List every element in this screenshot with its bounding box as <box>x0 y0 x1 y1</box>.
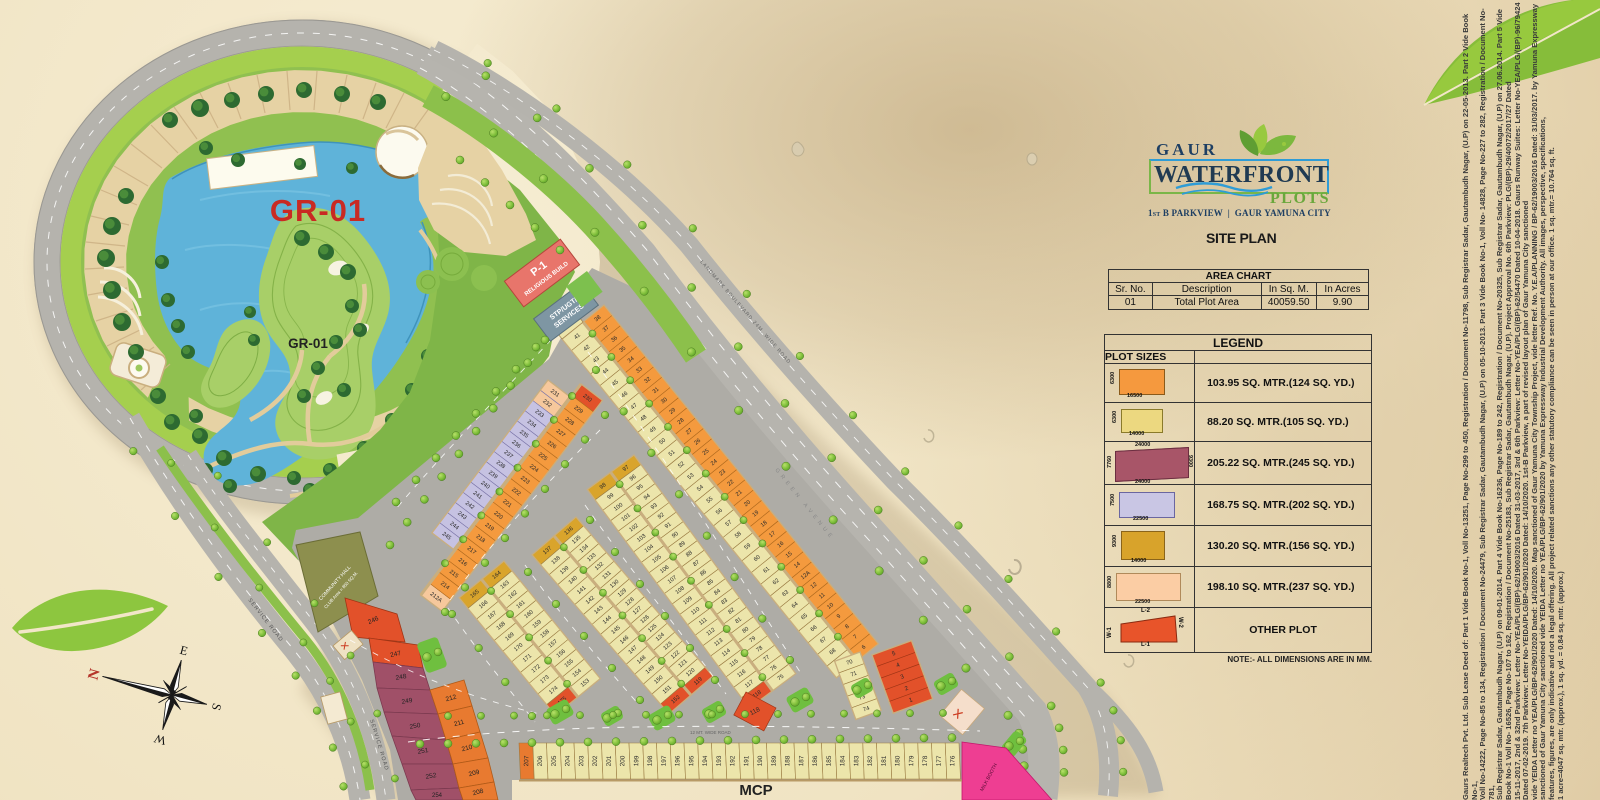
svg-text:193: 193 <box>716 755 723 766</box>
svg-text:199: 199 <box>633 755 640 766</box>
svg-text:183: 183 <box>853 755 860 766</box>
svg-text:204: 204 <box>564 755 571 766</box>
svg-text:254: 254 <box>432 793 443 799</box>
svg-text:191: 191 <box>743 755 750 766</box>
svg-text:182: 182 <box>867 755 874 766</box>
svg-text:194: 194 <box>702 755 709 766</box>
svg-text:198: 198 <box>647 755 654 766</box>
svg-text:189: 189 <box>771 755 778 766</box>
svg-text:207: 207 <box>523 755 530 766</box>
svg-text:177: 177 <box>936 755 943 766</box>
svg-text:185: 185 <box>826 755 833 766</box>
svg-text:178: 178 <box>922 755 929 766</box>
svg-text:GR-01: GR-01 <box>288 336 328 351</box>
svg-text:GR-01: GR-01 <box>270 193 366 228</box>
svg-text:12 MT. WIDE ROAD: 12 MT. WIDE ROAD <box>690 730 732 735</box>
svg-text:202: 202 <box>592 755 599 766</box>
svg-text:188: 188 <box>784 755 791 766</box>
svg-text:197: 197 <box>661 755 668 766</box>
svg-text:179: 179 <box>908 755 915 766</box>
svg-text:184: 184 <box>839 755 846 766</box>
svg-text:203: 203 <box>578 755 585 766</box>
svg-text:181: 181 <box>881 755 888 766</box>
svg-text:200: 200 <box>619 755 626 766</box>
svg-text:201: 201 <box>606 755 613 766</box>
svg-text:186: 186 <box>812 755 819 766</box>
svg-text:176: 176 <box>949 755 956 766</box>
svg-text:195: 195 <box>688 755 695 766</box>
svg-text:180: 180 <box>894 755 901 766</box>
svg-text:196: 196 <box>674 755 681 766</box>
svg-text:205: 205 <box>551 755 558 766</box>
svg-text:192: 192 <box>729 755 736 766</box>
svg-text:187: 187 <box>798 755 805 766</box>
svg-text:190: 190 <box>757 755 764 766</box>
svg-text:206: 206 <box>537 755 544 766</box>
svg-text:MCP: MCP <box>739 782 772 799</box>
